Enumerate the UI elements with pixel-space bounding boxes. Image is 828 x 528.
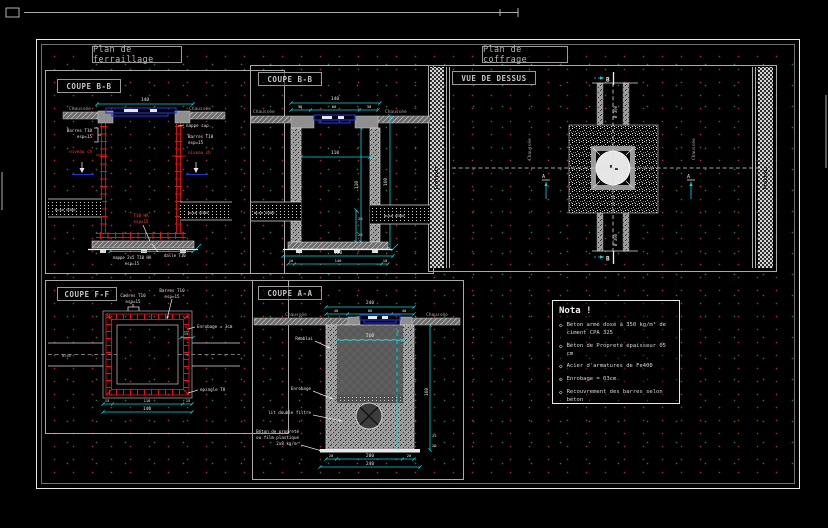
nota-list: ◇Béton armé dosé à 350 kg/m³ de ciment C… — [559, 321, 673, 405]
header-plan-coffrage: Plan de coffrage — [482, 46, 568, 63]
title-coupe-aa-label: COUPE A-A — [267, 289, 312, 298]
title-vue-de-dessus-label: VUE DE DESSUS — [461, 74, 526, 83]
header-plan-ferraillage: Plan de ferraillage — [92, 46, 182, 63]
nota-item: ◇Acier d'armatures de Fe400 — [559, 362, 673, 371]
nota-item: ◇Recouvrement des barres selon béton — [559, 388, 673, 405]
nota-item: ◇Béton armé dosé à 350 kg/m³ de ciment C… — [559, 321, 673, 338]
title-vue-de-dessus: VUE DE DESSUS — [452, 71, 536, 85]
nota-item-text: Béton de Propreté épaisseur 05 cm — [567, 342, 673, 359]
title-coupe-ff-label: COUPE F-F — [64, 290, 109, 299]
header-plan-ferraillage-label: Plan de ferraillage — [93, 45, 181, 65]
header-plan-coffrage-label: Plan de coffrage — [483, 45, 567, 65]
title-coupe-ff: COUPE F-F — [57, 287, 117, 301]
title-coupe-bb-coffrage: COUPE B-B — [258, 72, 322, 86]
nota-item-text: Béton armé dosé à 350 kg/m³ de ciment CP… — [567, 321, 673, 338]
diamond-bullet-icon: ◇ — [559, 375, 563, 384]
diamond-bullet-icon: ◇ — [559, 342, 563, 359]
panel-coupe-bb-coffrage — [250, 65, 434, 274]
nota-item-text: Acier d'armatures de Fe400 — [567, 362, 653, 371]
diamond-bullet-icon: ◇ — [559, 362, 563, 371]
nota-item: ◇Enrobage = 03cm — [559, 375, 673, 384]
title-coupe-bb-coffrage-label: COUPE B-B — [267, 75, 312, 84]
nota-title: Nota ! — [559, 306, 673, 316]
nota-box: Nota ! ◇Béton armé dosé à 350 kg/m³ de c… — [552, 300, 680, 404]
nota-item-text: Enrobage = 03cm — [567, 375, 617, 384]
panel-coupe-aa — [252, 280, 464, 480]
diamond-bullet-icon: ◇ — [559, 388, 563, 405]
nota-item: ◇Béton de Propreté épaisseur 05 cm — [559, 342, 673, 359]
panel-coupe-bb-ferraillage — [45, 70, 285, 274]
title-coupe-bb-ferraillage: COUPE B-B — [57, 79, 121, 93]
panel-vue-de-dessus — [428, 65, 777, 272]
title-coupe-bb-ferraillage-label: COUPE B-B — [66, 82, 111, 91]
title-coupe-aa: COUPE A-A — [258, 286, 322, 300]
cad-sheet: Plan de ferraillage Plan de coffrage COU… — [0, 0, 828, 528]
diamond-bullet-icon: ◇ — [559, 321, 563, 338]
nota-item-text: Recouvrement des barres selon béton — [567, 388, 673, 405]
